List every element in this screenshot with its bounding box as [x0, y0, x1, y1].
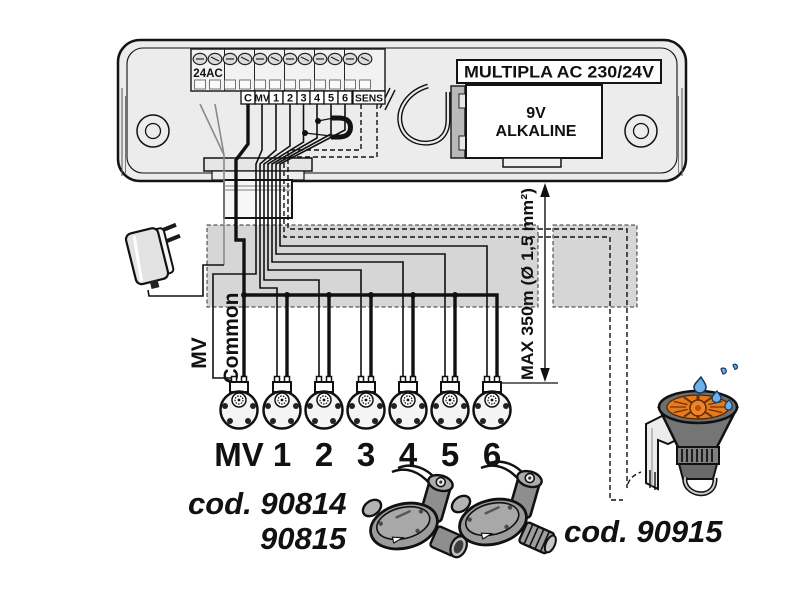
terminal-24ac-label: 24AC [193, 68, 222, 80]
valve-solenoid-4 [390, 377, 427, 429]
common-branch-wires [287, 295, 455, 381]
battery-tab [503, 158, 561, 167]
common-wire-label: Common [220, 293, 243, 384]
terminal-label-c: C [244, 93, 252, 105]
product-code-sensor: cod. 90915 [564, 514, 723, 549]
terminal-label-4: 4 [314, 93, 321, 105]
wiring-diagram: 24AC C MV 1 2 3 4 5 6 [0, 0, 801, 601]
valve-solenoid-5 [432, 377, 469, 429]
terminal-label-2: 2 [287, 93, 293, 105]
valve-solenoid-1 [264, 377, 301, 429]
rain-sensor-icon [646, 364, 737, 494]
battery-type-label: ALKALINE [496, 123, 577, 140]
terminal-label-mv: MV [255, 94, 270, 105]
terminal-label-1: 1 [273, 93, 279, 105]
max-length-label: MAX 350m (Ø 1,5 mm²) [519, 188, 537, 380]
valve-row: MV 1 2 3 4 5 6 [214, 377, 510, 474]
cable-gland [204, 158, 312, 218]
product-code-valves-line1: cod. 90814 [188, 486, 347, 521]
power-adapter-icon [125, 223, 181, 292]
product-valve-icon-90814 [360, 466, 470, 560]
diagram-canvas: 24AC C MV 1 2 3 4 5 6 [0, 0, 801, 601]
valve-solenoid-3 [348, 377, 385, 429]
gland-step [212, 171, 304, 180]
terminal-label-sens: SENS [355, 94, 383, 105]
battery-voltage-label: 9V [526, 105, 546, 122]
arrowhead-up [540, 183, 550, 197]
terminal-labels: C MV 1 2 3 4 5 6 SENS [241, 91, 385, 105]
model-label: MULTIPLA AC 230/24V [464, 63, 655, 82]
sensor-base [679, 464, 717, 479]
valve-label-5: 5 [441, 436, 459, 473]
valve-label-2: 2 [315, 436, 333, 473]
battery: 9V ALKALINE [451, 85, 602, 167]
mv-wire-label: MV [188, 337, 211, 369]
valve-solenoid-6 [474, 377, 511, 429]
product-code-valves-line2: 90815 [260, 521, 347, 556]
valve-label-mv: MV [214, 436, 264, 473]
valve-label-3: 3 [357, 436, 375, 473]
terminal-label-3: 3 [300, 93, 306, 105]
terminal-label-6: 6 [342, 93, 348, 105]
valve-solenoid-2 [306, 377, 343, 429]
terminal-label-5: 5 [328, 93, 334, 105]
arrowhead-down [540, 368, 550, 382]
valve-label-1: 1 [273, 436, 291, 473]
